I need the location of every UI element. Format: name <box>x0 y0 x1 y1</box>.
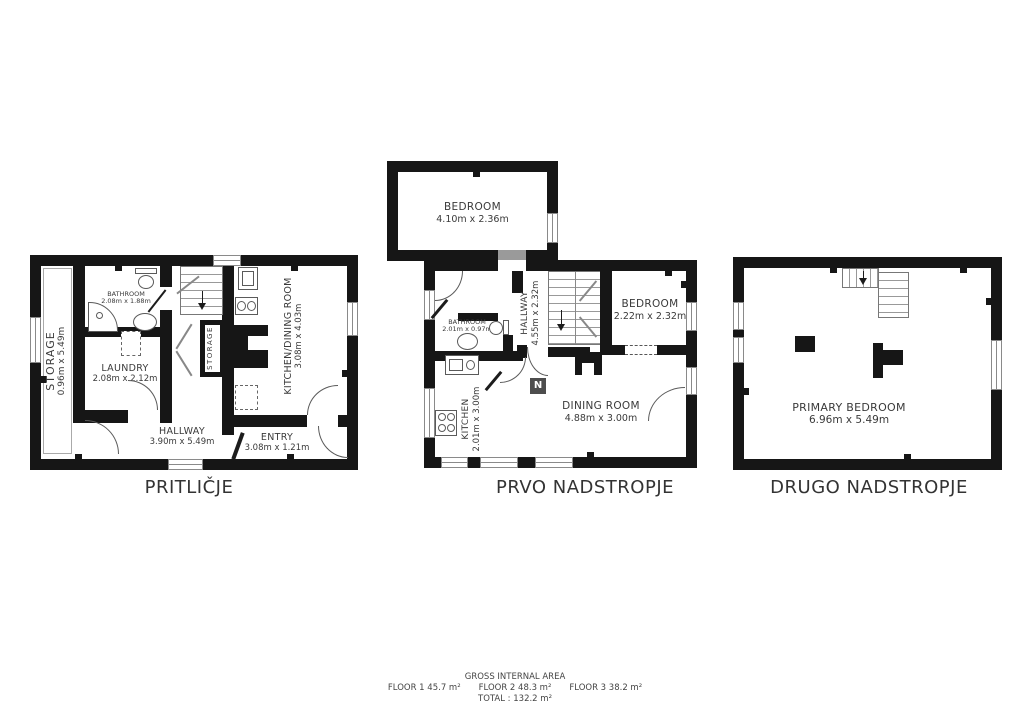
north-compass-icon: N <box>530 378 546 394</box>
stove-burner <box>447 413 455 421</box>
wall-opening-dashed <box>625 345 657 355</box>
gia-total: TOTAL : 132.2 m² <box>0 694 1030 705</box>
bifold-door <box>175 324 192 350</box>
main-floor-box: BATHROOM 2.01m x 0.97m HALLWAY 4.55m x 2… <box>424 260 697 468</box>
stove-burner <box>438 424 446 432</box>
plan-title-ground-floor: PRITLIČJE <box>26 477 352 498</box>
window <box>535 457 573 468</box>
wall-tick <box>473 172 480 177</box>
room-name: DINING ROOM <box>541 400 661 413</box>
wall-tick <box>287 454 294 459</box>
stair-down-arrow <box>198 303 206 310</box>
room-label-laundry: LAUNDRY 2.08m x 2.12m <box>85 363 165 385</box>
wall <box>73 266 85 423</box>
room-dims: 2.08m x 2.12m <box>85 374 165 384</box>
room-dims: 4.55m x 2.32m <box>531 268 541 358</box>
chimney-notch <box>248 336 268 350</box>
washer-icon <box>121 331 141 356</box>
plan-ground-floor: STORAGE STORAGE 0.96m x 5.49m BATHROOM 2… <box>30 255 358 470</box>
compass-letter: N <box>534 380 542 391</box>
room-label-storage-side: STORAGE 0.96m x 5.49m <box>44 296 74 426</box>
room-name: BEDROOM <box>412 201 533 214</box>
window <box>733 337 744 363</box>
kitchen-sink-icon <box>247 301 256 311</box>
wall-tick <box>681 281 686 288</box>
toilet-icon <box>489 321 503 335</box>
staircase <box>180 266 223 315</box>
room-dims: 3.08m x 4.03m <box>294 271 304 401</box>
room-name: KITCHEN/DINING ROOM <box>283 271 294 401</box>
window <box>213 255 241 266</box>
toilet-icon <box>135 268 157 274</box>
stair-down-arrow <box>859 278 867 285</box>
wall <box>657 345 686 355</box>
staircase <box>842 268 879 288</box>
toilet-icon <box>503 320 509 335</box>
wall-tick <box>830 268 837 273</box>
wall <box>503 335 513 351</box>
room-label-bathroom: BATHROOM 2.08m x 1.88m <box>94 291 158 305</box>
door-arc <box>648 387 685 421</box>
kitchen-sink-icon <box>466 360 475 370</box>
staircase <box>878 272 909 318</box>
room-label-dining: DINING ROOM 4.88m x 3.00m <box>541 400 661 424</box>
gia-heading: GROSS INTERNAL AREA <box>0 672 1030 683</box>
shower-drain-icon <box>96 312 103 319</box>
wall-tick <box>342 370 347 377</box>
wall-tick <box>960 268 967 273</box>
room-dims: 2.01m x 3.00m <box>472 374 482 464</box>
plan-second-floor: PRIMARY BEDROOM 6.96m x 5.49m <box>733 257 1002 470</box>
sink-icon <box>133 313 157 331</box>
toilet-icon <box>138 275 154 289</box>
chimney-notch <box>582 363 594 375</box>
shower-icon <box>88 302 118 332</box>
room-dims: 4.10m x 2.36m <box>412 214 533 225</box>
window <box>30 317 41 363</box>
room-label-storage-closet: STORAGE <box>206 315 220 381</box>
window <box>168 459 203 470</box>
stair-down-arrow <box>557 324 565 331</box>
plan-title-second-floor: DRUGO NADSTROPJE <box>735 477 1003 498</box>
wall <box>222 415 307 427</box>
room-label-kitchen: KITCHEN 2.01m x 3.00m <box>461 374 485 464</box>
door-arc <box>435 271 463 301</box>
bedroom-top-box: BEDROOM 4.10m x 2.36m <box>387 161 558 261</box>
window <box>347 302 358 336</box>
gia-floor-1: FLOOR 1 45.7 m² <box>388 683 461 693</box>
room-name: PRIMARY BEDROOM <box>769 401 929 414</box>
room-dims: 4.88m x 3.00m <box>541 413 661 424</box>
sink-icon <box>457 333 478 350</box>
window <box>733 302 744 330</box>
window <box>441 457 468 468</box>
gross-internal-area-note: GROSS INTERNAL AREA FLOOR 1 45.7 m²FLOOR… <box>0 672 1030 705</box>
room-name: HALLWAY <box>132 426 232 437</box>
room-dims: 3.90m x 5.49m <box>132 437 232 447</box>
plan-title-first-floor: PRVO NADSTROPJE <box>437 477 733 498</box>
wall-tick <box>115 266 122 271</box>
oven-icon <box>242 271 254 286</box>
wall-tick <box>291 266 298 271</box>
room-name: KITCHEN <box>461 374 472 464</box>
room-name: STORAGE <box>44 296 57 426</box>
window <box>991 340 1002 390</box>
dishwasher-icon <box>235 385 258 410</box>
door-arc <box>500 357 526 383</box>
room-dims: 2.08m x 1.88m <box>94 298 158 305</box>
wall-tick <box>587 452 594 457</box>
kitchen-sink-icon <box>237 301 246 311</box>
window <box>686 302 697 331</box>
door-arc <box>307 385 338 415</box>
window <box>480 457 518 468</box>
door-arc <box>85 420 119 454</box>
wall <box>160 266 172 287</box>
wall-tick <box>904 454 911 459</box>
window <box>686 367 697 395</box>
bifold-door <box>175 351 192 377</box>
room-dims: 3.08m x 1.21m <box>227 443 327 453</box>
wall-tick <box>744 388 749 395</box>
wall-tick <box>665 271 672 276</box>
room-label-hallway: HALLWAY 3.90m x 5.49m <box>132 426 232 448</box>
stair-divider <box>575 272 576 344</box>
door-arc <box>527 347 548 376</box>
plan-first-floor: BEDROOM 4.10m x 2.36m BATHROOM 2.01m x 0… <box>387 161 697 468</box>
stair-winder-line <box>176 276 199 295</box>
gia-floor-2: FLOOR 2 48.3 m² <box>479 683 552 693</box>
chimney <box>873 343 883 378</box>
stove-burner <box>447 424 455 432</box>
wall-tick <box>41 376 46 383</box>
room-name: STORAGE <box>206 315 214 381</box>
room-label-bedroom-top: BEDROOM 4.10m x 2.36m <box>412 201 533 225</box>
room-name: LAUNDRY <box>85 363 165 374</box>
floor-plan-sheet: STORAGE STORAGE 0.96m x 5.49m BATHROOM 2… <box>0 0 1030 728</box>
room-label-kitchen-dining: KITCHEN/DINING ROOM 3.08m x 4.03m <box>283 271 309 401</box>
stove-burner <box>438 413 446 421</box>
room-dims: 0.96m x 5.49m <box>57 296 68 426</box>
wall <box>600 345 625 355</box>
wall-tick <box>75 454 82 459</box>
room-dims: 6.96m x 5.49m <box>769 414 929 427</box>
gia-floors: FLOOR 1 45.7 m²FLOOR 2 48.3 m²FLOOR 3 38… <box>0 683 1030 694</box>
kitchen-sink-icon <box>449 359 463 371</box>
chimney <box>795 336 815 352</box>
chimney <box>883 350 903 365</box>
wall-tick <box>986 298 991 305</box>
room-label-primary-bedroom: PRIMARY BEDROOM 6.96m x 5.49m <box>769 401 929 427</box>
gia-floor-3: FLOOR 3 38.2 m² <box>569 683 642 693</box>
window <box>424 388 435 438</box>
wall <box>222 266 234 325</box>
window <box>547 213 558 243</box>
